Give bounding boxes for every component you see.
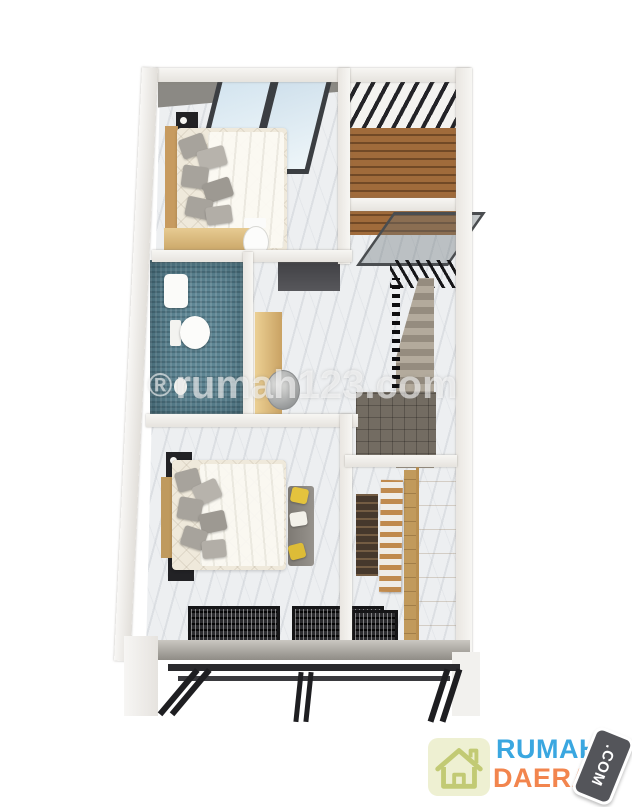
brand-logo: RUMAH DAERAH .COM: [420, 730, 632, 800]
wall-stair-wardrobe: [345, 455, 457, 467]
toilet: [170, 316, 212, 350]
sink: [164, 274, 188, 308]
toilet-bowl: [180, 316, 210, 349]
pergola-slats: [345, 76, 457, 128]
facade-beam: [168, 664, 460, 671]
facade-wall-left: [124, 636, 158, 716]
cushion-yellow: [290, 486, 310, 504]
pillow: [201, 539, 227, 559]
watermark-text: rumah123.com: [175, 363, 457, 408]
lamp: [180, 117, 187, 124]
wall-bedroom-balcony: [338, 68, 350, 264]
brand-badge-text: .COM: [587, 743, 619, 789]
wall-balcony: [343, 198, 460, 211]
facade-beam: [178, 676, 450, 681]
registered-icon: ®: [148, 366, 172, 404]
facade-ledge: [150, 640, 470, 660]
sideboard: [356, 494, 378, 576]
cushion-white: [289, 511, 308, 527]
wall-hall-bedroom: [146, 414, 358, 427]
house-icon: [428, 738, 490, 796]
watermark: ® rumah123.com: [148, 360, 488, 410]
ladder-stair: [379, 480, 403, 592]
pillow: [205, 204, 233, 225]
wardrobe-side: [404, 470, 416, 648]
wall-bedroom-wardrobe: [340, 414, 352, 654]
wall-top: [156, 68, 470, 82]
